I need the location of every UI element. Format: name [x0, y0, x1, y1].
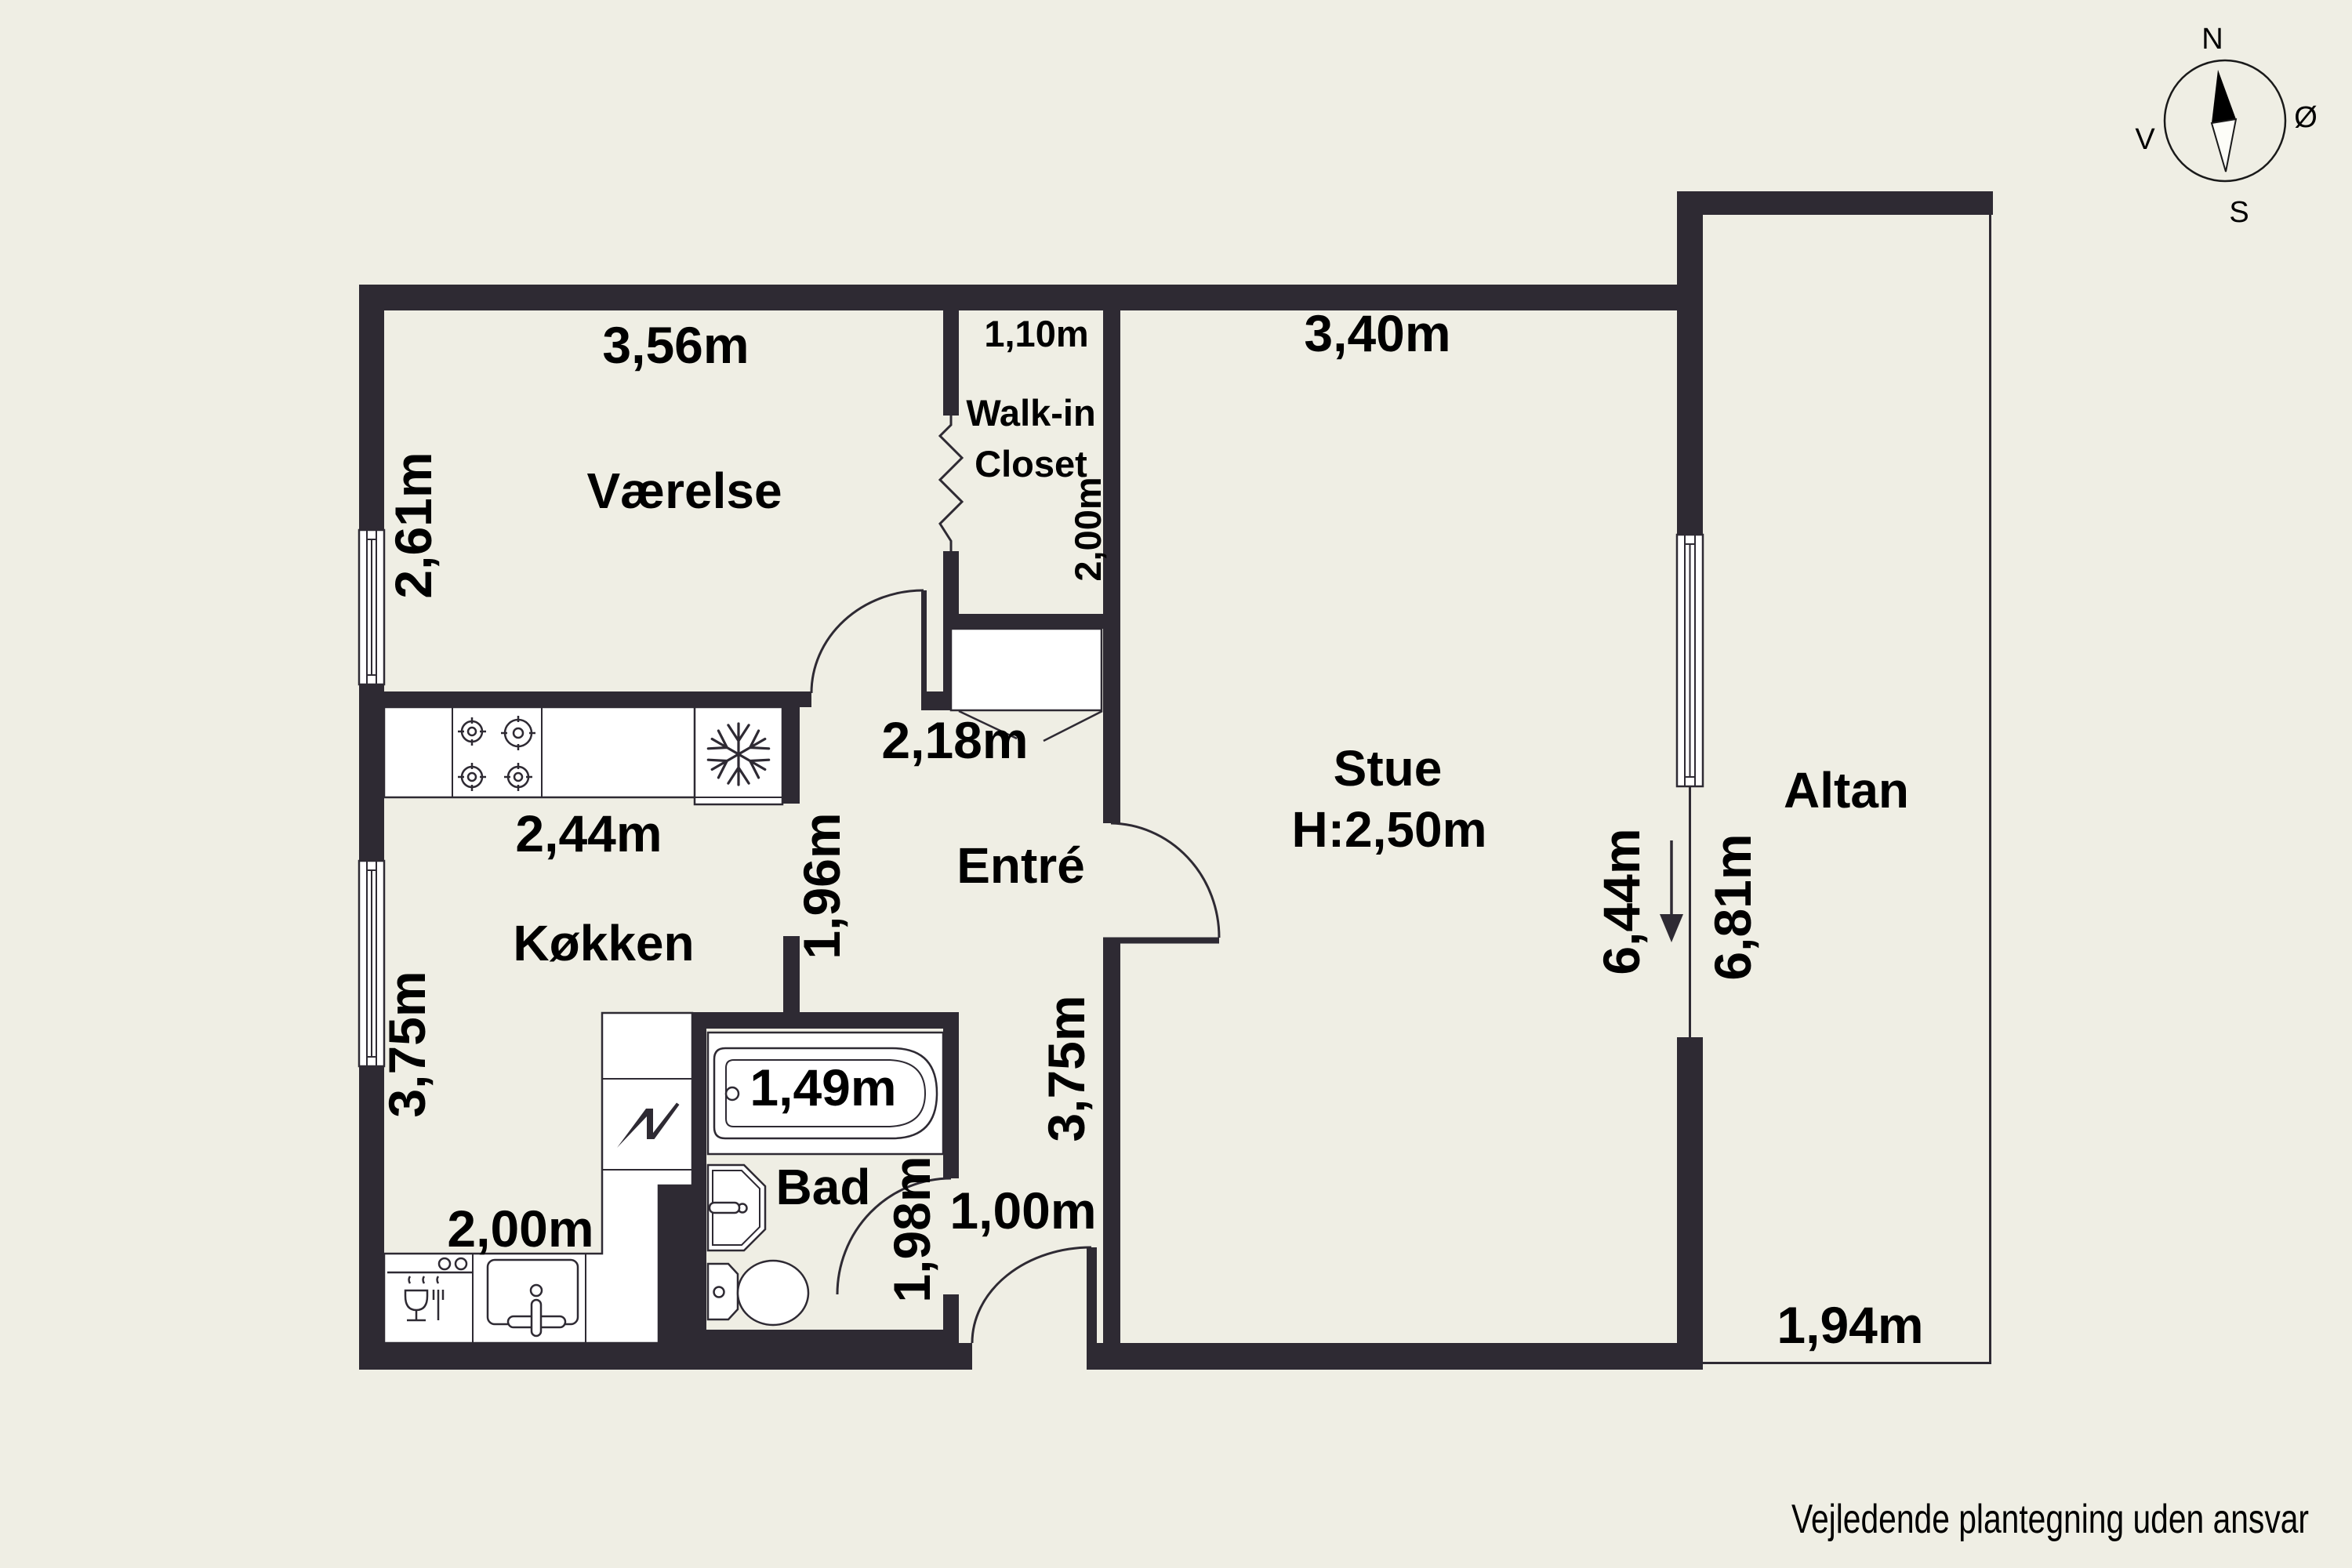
- svg-text:Altan: Altan: [1784, 762, 1909, 818]
- svg-text:S: S: [2229, 196, 2249, 229]
- svg-text:3,56m: 3,56m: [602, 316, 749, 374]
- svg-text:1,94m: 1,94m: [1777, 1296, 1923, 1354]
- svg-text:Walk-in: Walk-in: [966, 392, 1095, 434]
- svg-text:3,75m: 3,75m: [378, 971, 436, 1117]
- svg-text:Entré: Entré: [956, 837, 1085, 894]
- svg-text:1,10m: 1,10m: [984, 313, 1088, 354]
- svg-text:2,00m: 2,00m: [447, 1200, 593, 1258]
- svg-text:Vejledende plantegning uden an: Vejledende plantegning uden ansvar: [1791, 1497, 2309, 1542]
- svg-text:3,75m: 3,75m: [1037, 995, 1095, 1142]
- svg-text:V: V: [2135, 123, 2155, 156]
- svg-text:2,44m: 2,44m: [515, 804, 662, 862]
- svg-text:N: N: [2201, 23, 2223, 56]
- svg-text:2,00m: 2,00m: [1067, 477, 1109, 581]
- svg-text:Ø: Ø: [2294, 101, 2318, 134]
- svg-text:2,61m: 2,61m: [384, 452, 442, 598]
- svg-text:1,96m: 1,96m: [793, 812, 851, 959]
- svg-text:1,00m: 1,00m: [949, 1181, 1096, 1240]
- svg-text:6,81m: 6,81m: [1704, 833, 1762, 980]
- svg-text:Værelse: Værelse: [586, 463, 782, 519]
- svg-text:Stue: Stue: [1334, 740, 1443, 797]
- svg-text:6,44m: 6,44m: [1592, 828, 1650, 975]
- svg-text:1,98m: 1,98m: [883, 1156, 941, 1302]
- svg-text:Køkken: Køkken: [513, 915, 694, 971]
- svg-text:Bad: Bad: [776, 1159, 871, 1215]
- svg-text:H:2,50m: H:2,50m: [1292, 801, 1487, 858]
- svg-text:2,18m: 2,18m: [881, 711, 1028, 769]
- svg-text:3,40m: 3,40m: [1304, 304, 1450, 362]
- svg-text:1,49m: 1,49m: [750, 1058, 896, 1116]
